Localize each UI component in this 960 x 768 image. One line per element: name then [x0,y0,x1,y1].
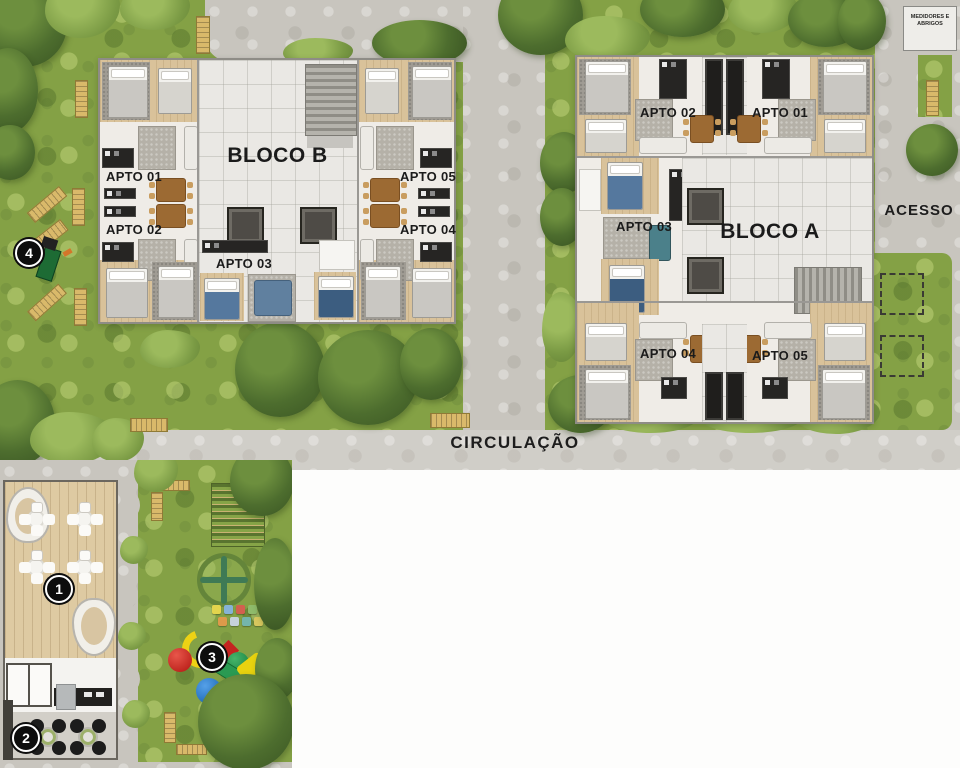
bathroom [319,240,355,270]
bench [75,80,88,118]
kitchen-counter [104,206,136,217]
bed [158,266,194,318]
dining-table [370,178,400,202]
site-plan-canvas: BLOCO B BLOCO A APTO 01 APTO 02 APTO 03 … [0,0,960,768]
sofa [360,126,374,170]
elevator [687,257,724,294]
stepping-stone [212,605,221,614]
bench [151,492,163,521]
bed [585,119,627,153]
apto-label-a5: APTO 05 [752,348,808,363]
bed [607,162,643,210]
kitchen-counter [420,148,452,168]
tree [198,674,292,768]
bed [824,323,866,361]
apto-label-b2: APTO 02 [106,222,162,237]
meters-shelters-box: MEDIDORES E ABRIGOS [903,6,957,51]
marker-garden-feature: 4 [15,239,43,267]
reserved-area-box [880,273,924,315]
tree [906,124,958,176]
bed [824,119,866,153]
grill-steel [56,684,76,710]
tree [838,0,886,50]
stepping-stone [248,605,257,614]
bench [74,288,87,326]
bed [106,268,148,318]
kitchen-counter [762,377,788,399]
kitchen-counter [420,242,452,262]
bench [176,744,207,755]
bbq-table [70,719,106,755]
service-strip [3,700,13,760]
stairs [305,64,357,136]
kitchen-counter [102,242,134,262]
stepping-stone [242,617,251,626]
living-rug [138,126,176,170]
apto-label-a1: APTO 01 [752,105,808,120]
patio-table [21,504,51,534]
entry-door [705,372,723,420]
annex-site: 1 2 3 [0,460,292,768]
block-b-title: BLOCO B [195,144,360,168]
patio-table [69,504,99,534]
bench [130,418,168,432]
bed [823,61,867,113]
bench [926,80,939,116]
access-label: ACESSO [880,202,958,219]
kitchen-counter [762,59,790,99]
bench [164,712,176,743]
patio-table [69,552,99,582]
living-rug [376,126,414,170]
bed [158,68,192,114]
kitchen-counter [202,240,268,253]
apto-label-a2: APTO 02 [640,105,696,120]
stepping-stone [236,605,245,614]
grill-detail [84,692,92,697]
patio-table [21,552,51,582]
circulation-label: CIRCULAÇÃO [425,433,605,453]
bathroom [579,169,601,211]
kitchen-counter [661,377,687,399]
marker-gourmet-deck: 1 [45,575,73,603]
kitchen-counter [659,59,687,99]
kitchen-counter [104,188,136,199]
garden-mandala [197,553,251,607]
bed [204,278,240,320]
bed [585,323,627,361]
elevator [227,207,264,244]
block-a-title: BLOCO A [690,220,850,244]
reserved-area-box [880,335,924,377]
bed [412,66,452,118]
dining-table [370,204,400,228]
stepping-stone [218,617,227,626]
bed [585,369,629,419]
apto-label-a4: APTO 04 [640,346,696,361]
kitchen-counter [418,188,450,199]
bed [318,276,354,318]
stepping-stone [224,605,233,614]
apto-label-b1: APTO 01 [106,169,162,184]
sofa [639,137,687,154]
apto-label-b5: APTO 05 [400,169,456,184]
door-panel [28,663,52,707]
bed [412,268,452,318]
sofa [764,137,812,154]
apto-label-b3: APTO 03 [216,256,272,271]
sofa [764,322,812,339]
kitchen-counter [418,206,450,217]
bed [585,61,629,113]
sofa [639,322,687,339]
apto-label-a3: APTO 03 [616,219,672,234]
kitchen-counter [102,148,134,168]
bench [196,16,210,54]
apto-label-b4: APTO 04 [400,222,456,237]
bed [108,66,148,118]
bench [72,188,85,226]
bench [430,413,470,428]
main-site-paving: BLOCO B BLOCO A APTO 01 APTO 02 APTO 03 … [0,0,960,470]
marker-barbecue: 2 [12,724,40,752]
bed [365,68,399,114]
elevator [300,207,337,244]
bed [365,266,401,318]
sofa [254,280,292,316]
stepping-stone [230,617,239,626]
bed [822,369,866,419]
tree [400,328,462,400]
play-ball-red [168,648,192,672]
marker-playground: 3 [198,643,226,671]
building-bloco-b [98,58,456,324]
tree [254,538,292,630]
tree [235,322,325,417]
entry-door [726,372,744,420]
